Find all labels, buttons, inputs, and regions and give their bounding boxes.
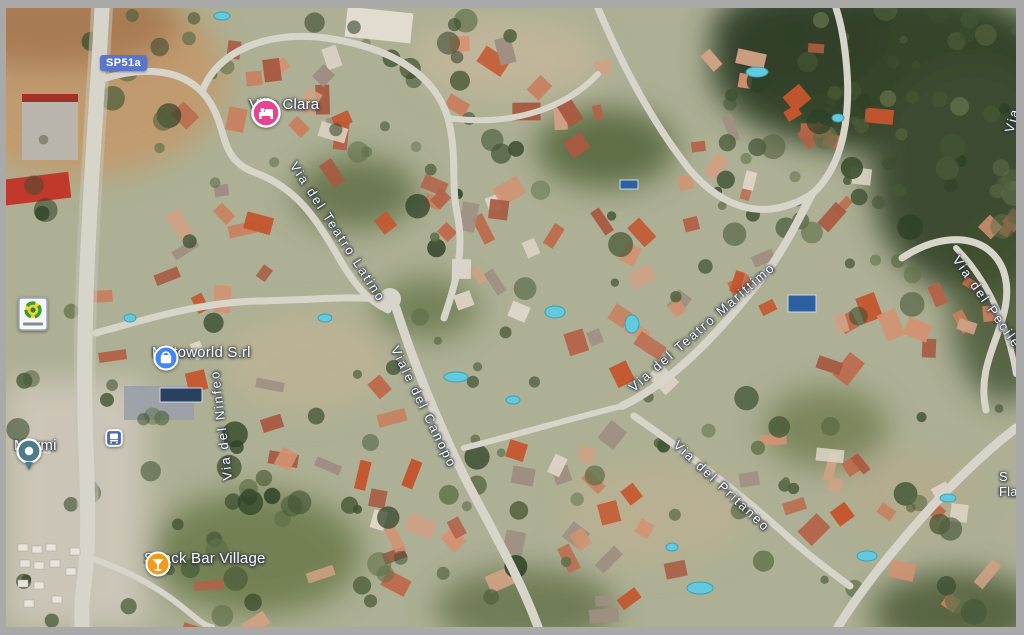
poi-marmi[interactable]: Marmi	[14, 437, 57, 454]
place-pin-icon[interactable]	[14, 437, 44, 473]
poi-truncated-right-edge[interactable]: S Fla	[999, 469, 1016, 499]
satellite-imagery	[6, 8, 1016, 627]
bar-icon[interactable]	[144, 550, 172, 578]
poi-motoworld[interactable]: Motoworld S.rl	[152, 344, 251, 361]
shopping-icon[interactable]	[152, 344, 180, 372]
green-emblem-logo-icon[interactable]	[18, 297, 48, 331]
poi-label[interactable]: S Fla	[999, 469, 1016, 499]
poi-villa-clara[interactable]: Villa Clara	[249, 96, 319, 113]
road-badge-sp51a: SP51a	[100, 55, 147, 71]
poi-snack-bar-village[interactable]: Snack Bar Village	[144, 550, 266, 567]
lodging-icon[interactable]	[249, 96, 283, 130]
window-frame: SP51a Via del Teatro Latino Via del Ninf…	[0, 0, 1024, 635]
map-viewport[interactable]: SP51a Via del Teatro Latino Via del Ninf…	[6, 8, 1016, 627]
bus-stop-icon[interactable]	[105, 429, 123, 447]
